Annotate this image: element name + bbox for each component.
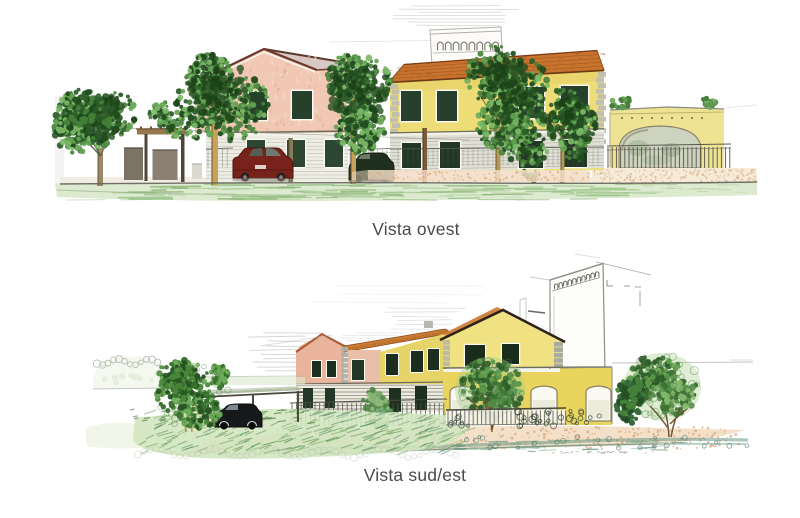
svg-text:Vista ovest: Vista ovest [372, 219, 459, 239]
